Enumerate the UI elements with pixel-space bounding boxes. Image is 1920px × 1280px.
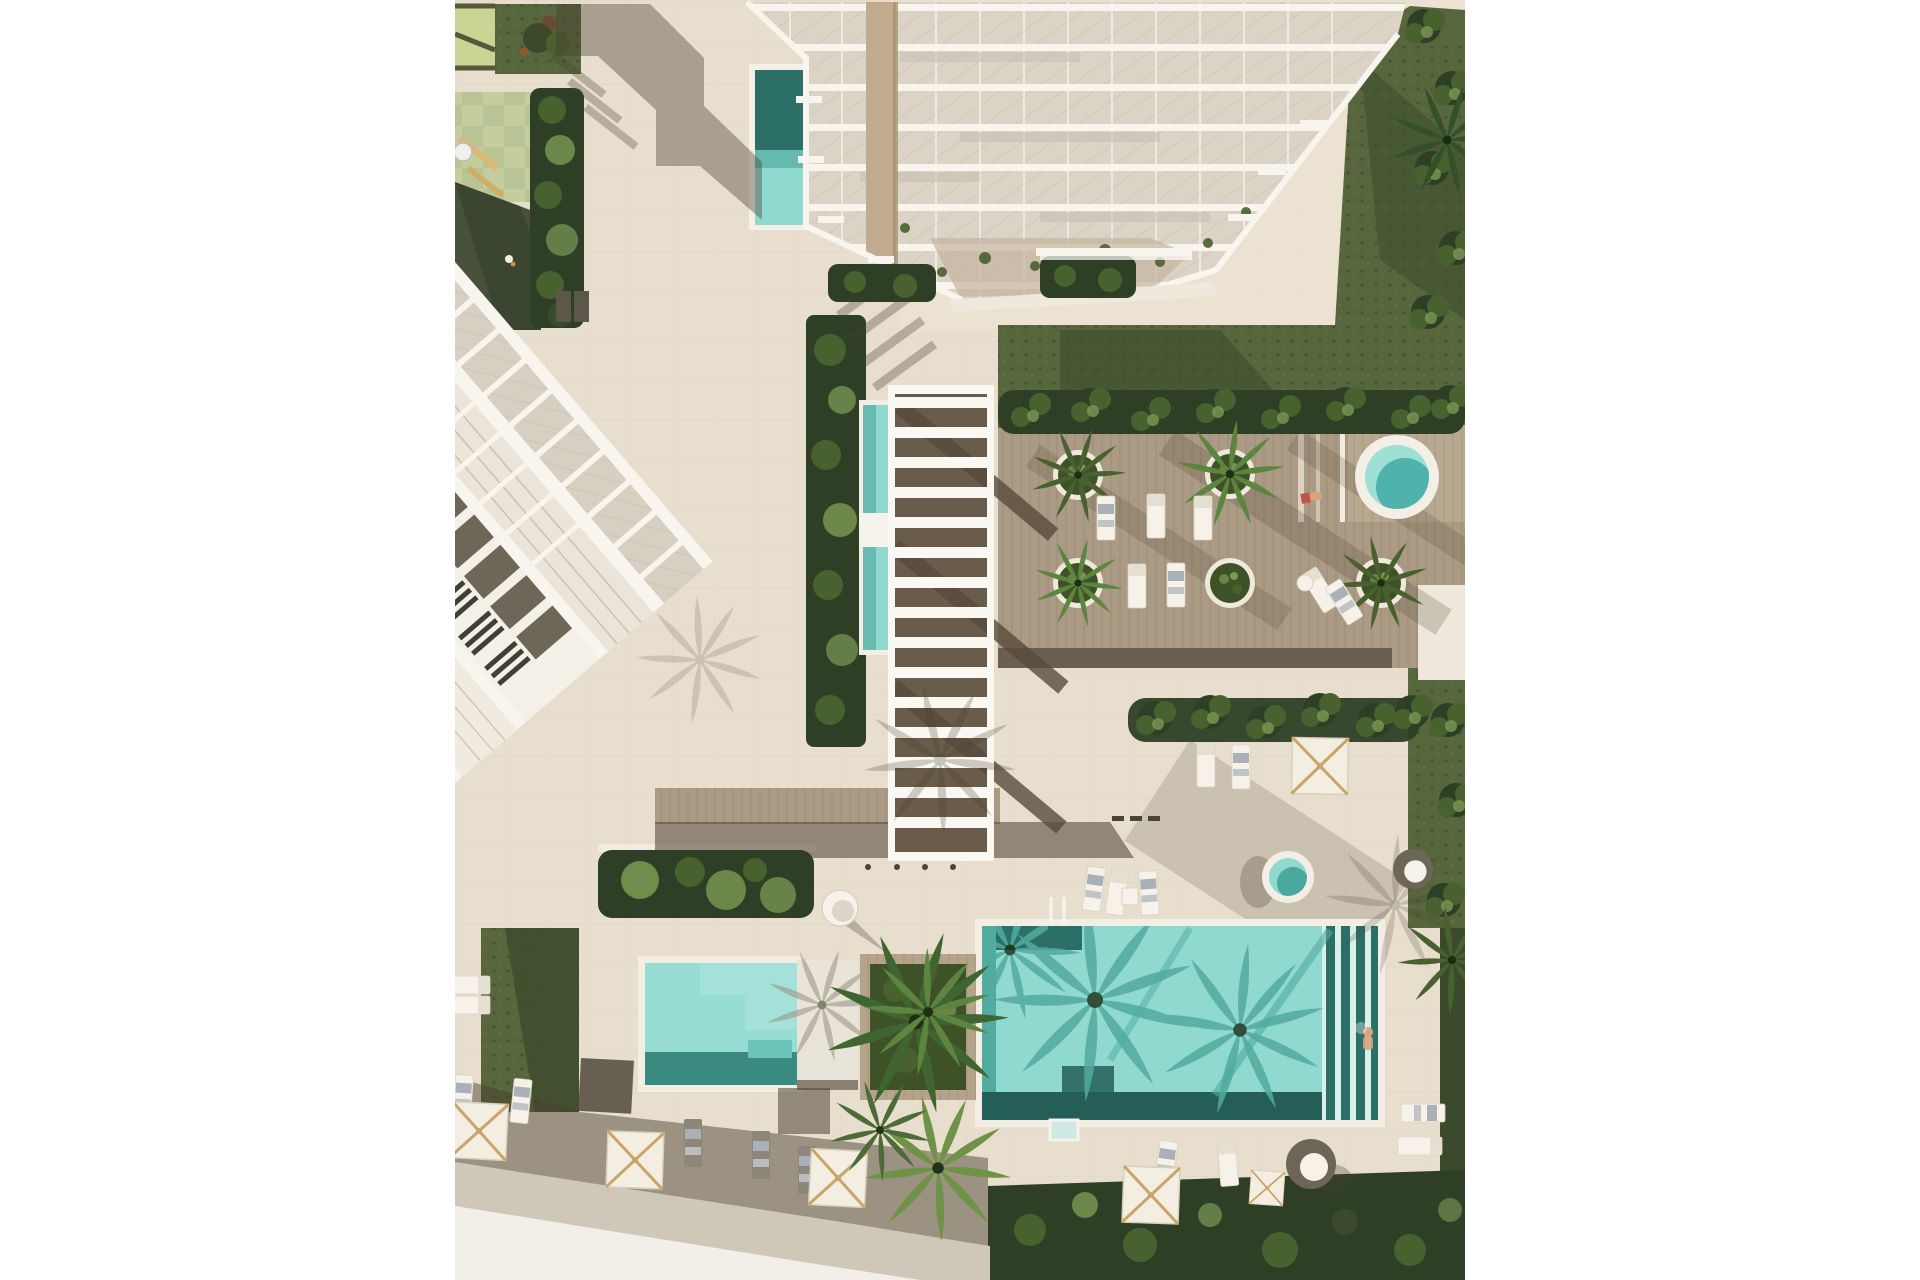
side-table <box>1122 888 1138 905</box>
deck-edge <box>998 648 1392 668</box>
sun-lounger <box>1197 743 1215 787</box>
right-margin <box>1465 0 1920 1280</box>
sun-lounger <box>1097 496 1115 540</box>
umbrella <box>450 1102 509 1161</box>
sun-lounger <box>684 1119 702 1167</box>
sun-lounger <box>1194 496 1212 540</box>
sun-lounger <box>1167 563 1185 607</box>
shade-square <box>778 1088 830 1134</box>
deck-hedge-row <box>998 385 1471 434</box>
left-margin <box>0 0 455 1280</box>
play-umbrella <box>454 143 472 161</box>
sun-lounger <box>1147 494 1165 538</box>
person-playground <box>505 255 513 263</box>
small-pool-group <box>638 949 880 1092</box>
bench <box>574 291 589 322</box>
hedge-strip-south <box>598 850 814 918</box>
sun-lounger <box>1138 870 1159 915</box>
egg-chair <box>1286 1139 1336 1189</box>
sun-lounger <box>752 1131 770 1179</box>
umbrella <box>606 1131 664 1189</box>
bench <box>556 291 571 322</box>
spa-pool-deck <box>1355 435 1439 519</box>
sun-lounger <box>1401 1104 1445 1122</box>
umbrella <box>1249 1170 1285 1206</box>
sun-lounger <box>1232 745 1250 789</box>
umbrella <box>1122 1166 1180 1224</box>
sun-lounger <box>1128 564 1146 608</box>
sun-lounger <box>1398 1137 1442 1155</box>
shade-square <box>578 1058 634 1114</box>
render-canvas <box>0 0 1920 1280</box>
architectural-aerial-render <box>0 0 1920 1280</box>
sun-lounger <box>1217 1141 1239 1186</box>
umbrella <box>1292 738 1349 795</box>
side-table <box>1297 575 1313 591</box>
egg-chair <box>1393 849 1433 889</box>
planter-round <box>1205 558 1255 608</box>
pool-step <box>1050 1120 1078 1140</box>
